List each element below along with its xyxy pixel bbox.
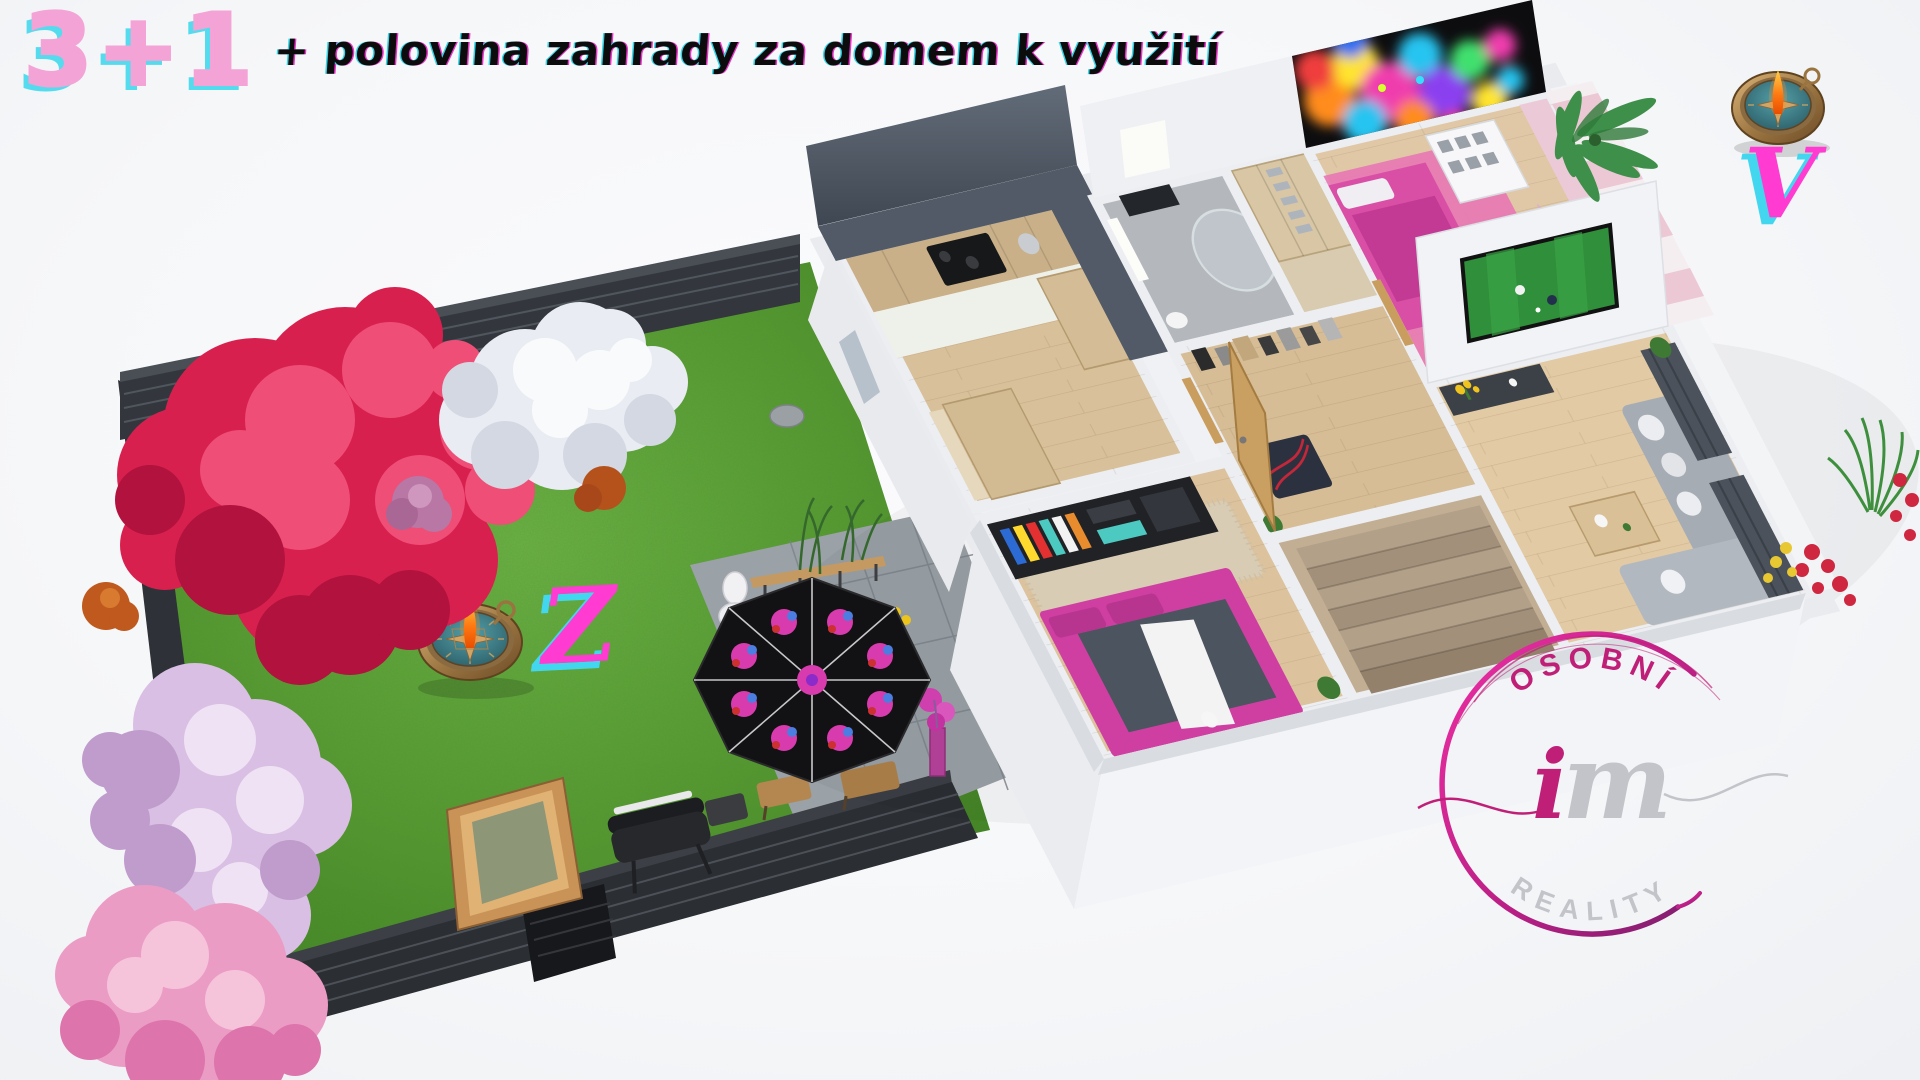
garden-rock <box>770 405 804 427</box>
floor-plan-poster: { "page": { "background_color": "#f7f8fa… <box>0 0 1920 1080</box>
west-orientation-label: Z <box>538 572 619 680</box>
header-subtitle: + polovina zahrady za domem k využití <box>272 26 1222 75</box>
logo-monogram-m: m <box>1562 720 1672 843</box>
header: 3+1 + polovina zahrady za domem k využit… <box>24 0 1220 103</box>
logo-arc-bottom-text: REALITY <box>1506 871 1678 927</box>
svg-text:im: im <box>1532 720 1672 843</box>
agency-logo: OSOBNÍ REALITY im <box>1414 612 1814 962</box>
disposition-badge: 3+1 <box>24 0 258 103</box>
svg-text:REALITY: REALITY <box>1506 871 1678 927</box>
logo-monogram: im <box>1418 720 1788 843</box>
patio-umbrella <box>694 578 930 782</box>
east-orientation-label: V <box>1744 136 1818 232</box>
